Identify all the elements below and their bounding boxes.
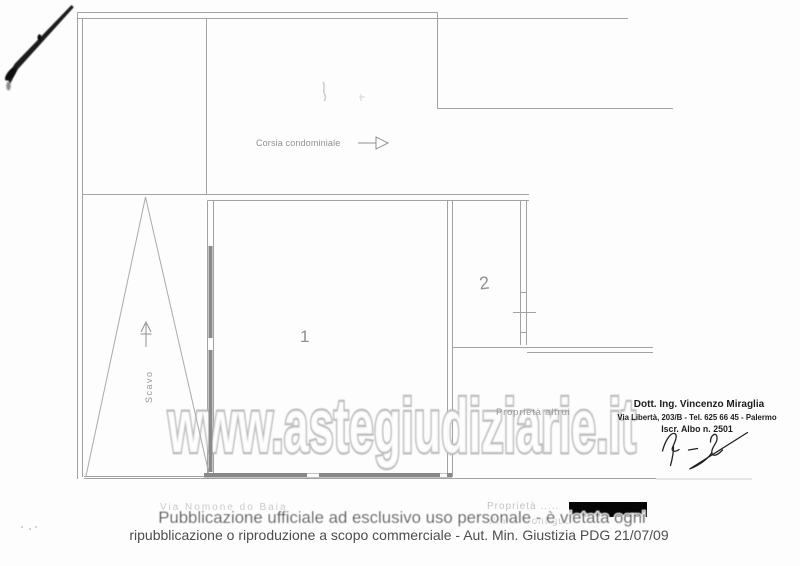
svg-text:ripubblicazione o riproduzione: ripubblicazione o riproduzione a scopo c… <box>129 527 668 543</box>
svg-text:2: 2 <box>478 273 490 294</box>
svg-text:1: 1 <box>300 327 309 346</box>
svg-text:Proprietà altrui: Proprietà altrui <box>496 407 571 418</box>
svg-text:Dott. Ing. Vincenzo Miragli: Dott. Ing. Vincenzo Miraglia <box>634 399 765 410</box>
svg-text:Via Libertà, 203/B - Tel. 625: Via Libertà, 203/B - Tel. 625 66 45 - Pa… <box>617 413 776 422</box>
svg-text:Iscr. Albo n. 2501: Iscr. Albo n. 2501 <box>661 424 733 434</box>
svg-text:Scavo: Scavo <box>144 370 154 403</box>
svg-text:Corsia condominiale: Corsia condominiale <box>256 138 340 148</box>
svg-text:www.astegiudiziarie.it: www.astegiudiziarie.it <box>167 384 636 469</box>
svg-text:Pubblicazione ufficiale ad esc: Pubblicazione ufficiale ad esclusivo uso… <box>158 508 646 527</box>
